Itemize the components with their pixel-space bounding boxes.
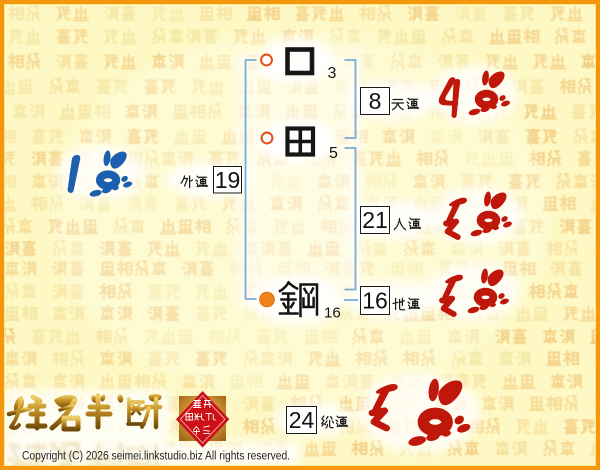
svg-text:Copyright (C) 2026 seimei.link: Copyright (C) 2026 seimei.linkstudio.biz… [22,451,290,463]
svg-text:24: 24 [289,407,315,433]
svg-text:8: 8 [369,88,382,114]
svg-text:16: 16 [362,288,388,314]
svg-text:3: 3 [328,65,337,82]
svg-text:19: 19 [215,167,241,193]
svg-text:5: 5 [329,145,338,162]
svg-text:21: 21 [362,207,388,233]
svg-text:16: 16 [324,305,341,322]
